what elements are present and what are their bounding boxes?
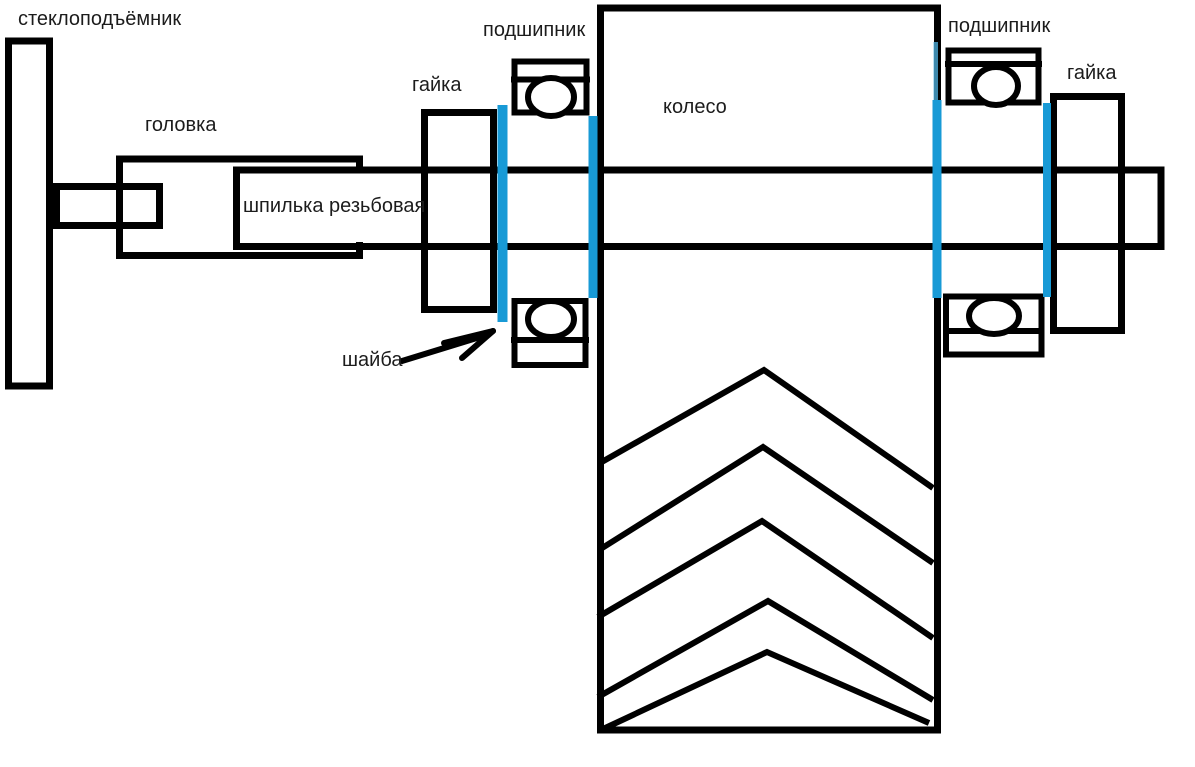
- washer-pointer-arrow: [402, 331, 493, 361]
- label-head: головка: [145, 115, 217, 136]
- label-wheel: колесо: [663, 97, 727, 118]
- nut-left: [425, 113, 494, 310]
- bearing-left: [511, 62, 590, 366]
- paint-canvas: стеклоподъёмник головка шпилька резьбова…: [0, 0, 1195, 767]
- washer-right-at-nut: [1043, 103, 1051, 297]
- nut-right: [1054, 97, 1122, 331]
- wheel-body: [601, 8, 938, 730]
- label-washer: шайба: [342, 350, 402, 371]
- plate-connector-block: [57, 187, 160, 226]
- bearing-right: [943, 51, 1042, 355]
- label-nut-right: гайка: [1067, 63, 1116, 84]
- label-bearing-left: подшипник: [483, 20, 585, 41]
- label-window-lifter: стеклоподъёмник: [18, 9, 181, 30]
- washer-right-at-wheel-top: [934, 42, 939, 104]
- wheel-gear-teeth: [598, 370, 933, 729]
- label-threaded-stud: шпилька резьбовая: [243, 196, 425, 217]
- label-bearing-right: подшипник: [948, 16, 1050, 37]
- washer-right-at-wheel: [933, 100, 942, 298]
- label-nut-left: гайка: [412, 75, 461, 96]
- washer-left-at-wheel: [589, 116, 598, 298]
- window-lifter-plate: [9, 41, 50, 386]
- washers: [498, 42, 1052, 322]
- washer-left-at-nut: [498, 105, 508, 322]
